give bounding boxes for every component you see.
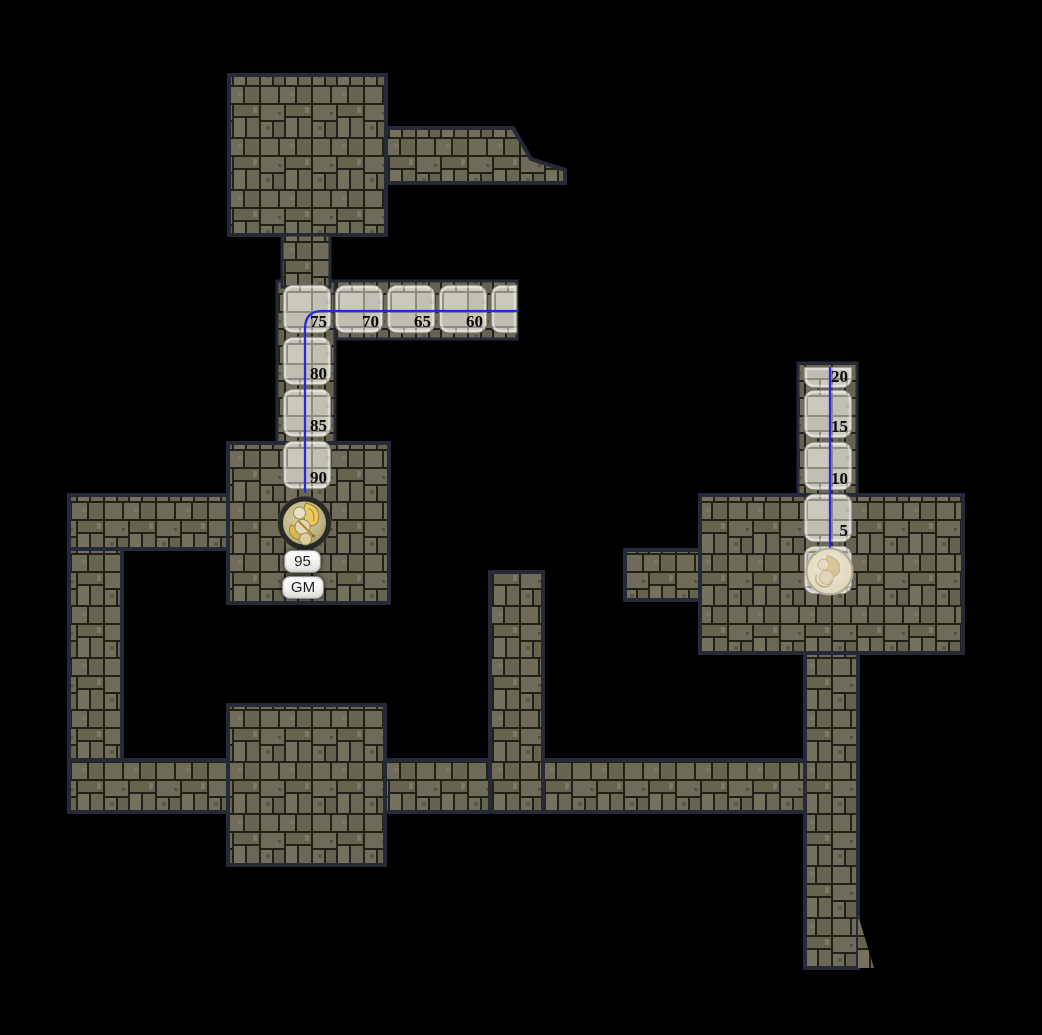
movement-distance-label: 60 <box>466 312 483 331</box>
movement-path-cell: 80 <box>283 337 331 385</box>
movement-path-cell: 90 <box>283 441 331 489</box>
movement-distance-label: 70 <box>362 312 379 331</box>
vtt-map-canvas[interactable]: 757065608085902015105 <box>0 0 1042 1035</box>
movement-distance-label: 90 <box>310 468 327 487</box>
dungeon-corridor <box>625 550 700 600</box>
dungeon-corridor <box>69 495 228 549</box>
movement-distance-label: 10 <box>831 469 848 488</box>
movement-path-cell <box>491 285 517 333</box>
movement-path-cell: 20 <box>804 367 852 388</box>
dungeon-corridor-fog-wedge <box>858 915 874 968</box>
movement-distance-label: 20 <box>831 367 848 386</box>
dungeon-corridor <box>282 235 330 287</box>
dungeon-map: 757065608085902015105 <box>0 0 1042 1035</box>
movement-path-cell: 70 <box>335 285 383 333</box>
movement-distance-label: 80 <box>310 364 327 383</box>
movement-distance-label: 15 <box>831 417 848 436</box>
dungeon-corridor <box>490 572 543 812</box>
movement-distance-label: 85 <box>310 416 327 435</box>
movement-path-cell: 75 <box>283 285 331 333</box>
movement-distance-label: 75 <box>310 312 327 331</box>
token-name-label: GM <box>282 576 324 599</box>
movement-path-cell: 60 <box>439 285 487 333</box>
movement-distance-label: 5 <box>840 521 849 540</box>
token-origin-ghost <box>807 549 853 595</box>
dungeon-corridor <box>386 128 565 183</box>
dungeon-corridor <box>69 760 805 812</box>
dungeon-room <box>229 75 386 235</box>
movement-path-cell: 65 <box>387 285 435 333</box>
dungeon-corridor <box>805 653 858 968</box>
gm-token[interactable] <box>278 496 332 550</box>
token-distance-label: 95 <box>284 550 321 573</box>
movement-path-cell: 85 <box>283 389 331 437</box>
movement-path-cell: 10 <box>804 442 852 490</box>
movement-distance-label: 65 <box>414 312 431 331</box>
movement-path-cell: 15 <box>804 390 852 438</box>
dungeon-room <box>228 705 385 865</box>
movement-path-cell: 5 <box>804 494 852 542</box>
